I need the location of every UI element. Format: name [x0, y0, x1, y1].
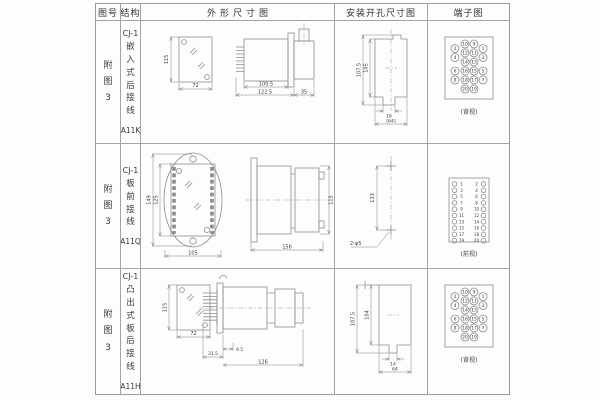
header-cutout: 安装开孔尺寸图	[335, 4, 428, 21]
dim-label: 9.5	[236, 347, 243, 353]
code-label: A11Q	[121, 237, 141, 246]
cutout-svg-a11k: 107.5 105 16 [64]	[335, 21, 428, 144]
svg-text:5: 5	[482, 317, 485, 323]
svg-text:4: 4	[454, 303, 457, 309]
dim-label: 133	[370, 193, 376, 203]
dim-label: 115	[329, 195, 335, 205]
fig-no-label: 附图3	[104, 182, 113, 231]
dim-label: 64	[392, 367, 398, 373]
svg-text:3: 3	[460, 188, 463, 193]
svg-text:14: 14	[462, 308, 468, 314]
dim-label: 2-φ5	[350, 241, 361, 247]
svg-text:10: 10	[462, 290, 468, 296]
fig-no-a11k: 附图3	[96, 21, 121, 144]
svg-text:16: 16	[462, 317, 468, 323]
terminal-svg-a11q: 1357911131517192468101214161820(前视)	[428, 144, 509, 269]
header-label: 安装开孔尺寸图	[346, 6, 416, 19]
svg-text:17: 17	[471, 326, 477, 332]
svg-text:6: 6	[454, 317, 457, 323]
svg-text:11: 11	[471, 299, 477, 305]
terminal-diagram-a11h: 1012141618209111315171924681357(背视)	[428, 269, 509, 394]
outline-drawing-a11q: 149 125 105 156 115	[141, 144, 335, 269]
svg-text:20: 20	[462, 335, 468, 341]
hook-mark	[219, 275, 227, 279]
header-outline: 外形尺寸图	[141, 4, 335, 21]
svg-text:13: 13	[459, 219, 465, 224]
svg-text:8: 8	[454, 326, 457, 332]
cutout-svg-a11q: 133 2-φ5	[335, 144, 428, 269]
svg-text:20: 20	[462, 87, 468, 93]
dim-label: 35	[301, 90, 307, 96]
svg-text:9: 9	[460, 207, 463, 212]
svg-text:1: 1	[460, 182, 463, 187]
model-label: CJ-1	[123, 29, 139, 38]
cutout-drawing-a11k: 107.5 105 16 [64]	[335, 21, 428, 144]
front-view: 115 72	[164, 37, 212, 91]
mirror-marks	[185, 181, 201, 210]
fig-no-a11q: 附图3	[96, 144, 121, 269]
header-label: 结构	[121, 6, 141, 19]
dim-label: 122.5	[258, 90, 272, 96]
code-label: A11H	[121, 382, 141, 391]
svg-text:9: 9	[473, 42, 476, 48]
spec-table: 图号 结构 外形尺寸图 安装开孔尺寸图 端子图 附图3 CJ-1 嵌入式后接线 …	[95, 3, 510, 395]
outline-drawing-a11h: 115 72 31.5 9.5	[141, 269, 335, 394]
structure-a11q: CJ-1 板前接线 A11Q	[121, 144, 141, 269]
dim-label: 72	[190, 331, 196, 337]
svg-text:(前视): (前视)	[461, 250, 478, 258]
side-view: 31.5 9.5 126	[199, 275, 311, 367]
svg-text:4: 4	[475, 188, 478, 193]
svg-text:11: 11	[459, 213, 465, 218]
svg-text:20: 20	[474, 238, 480, 243]
svg-text:14: 14	[474, 219, 480, 224]
header-label: 图号	[98, 6, 118, 19]
dim-label: 100.5	[259, 82, 273, 88]
svg-text:7: 7	[482, 78, 485, 84]
terminal-svg-a11h: 1012141618209111315171924681357(背视)	[428, 269, 509, 394]
svg-text:3: 3	[482, 303, 485, 309]
svg-text:7: 7	[460, 200, 463, 205]
code-label: A11K	[121, 126, 140, 135]
mirror-marks	[187, 294, 203, 316]
side-view: 100.5 122.5 35	[236, 23, 314, 97]
svg-text:18: 18	[462, 326, 468, 332]
svg-text:6: 6	[454, 69, 457, 75]
dim-label: 107.5	[357, 63, 363, 77]
svg-text:2: 2	[454, 294, 457, 300]
cutout-drawing-a11h: 107.5 104 14 64	[335, 269, 428, 394]
terminal-svg-a11k: 1012141618209111315171924681357(背视)	[428, 21, 509, 144]
svg-text:18: 18	[462, 78, 468, 84]
svg-text:17: 17	[459, 232, 465, 237]
dim-label: [64]	[386, 119, 395, 125]
dim-label: 105	[364, 63, 370, 73]
header-fig-no: 图号	[96, 4, 121, 21]
header-label: 外形尺寸图	[203, 6, 272, 19]
svg-text:13: 13	[471, 60, 477, 66]
svg-text:19: 19	[471, 87, 477, 93]
dim-label: 149	[147, 195, 153, 205]
dim-label: 107.5	[351, 312, 357, 326]
terminal-diagram-a11k: 1012141618209111315171924681357(背视)	[428, 21, 509, 144]
svg-text:18: 18	[474, 232, 480, 237]
outline-drawing-a11k: 115 72 100.5 122.5 35	[141, 21, 335, 144]
model-label: CJ-1	[123, 272, 139, 281]
cutout-svg-a11h: 107.5 104 14 64	[335, 269, 428, 394]
mount-type-label: 凸出式板后接线	[126, 284, 135, 373]
fig-no-a11h: 附图3	[96, 269, 121, 394]
cutout-drawing-a11q: 133 2-φ5	[335, 144, 428, 269]
svg-text:17: 17	[471, 78, 477, 84]
svg-text:16: 16	[462, 69, 468, 75]
svg-text:11: 11	[471, 51, 477, 57]
svg-text:2: 2	[475, 182, 478, 187]
svg-text:9: 9	[473, 290, 476, 296]
dim-label: 105	[188, 251, 198, 257]
mount-type-label: 板前接线	[126, 178, 135, 229]
svg-text:12: 12	[462, 299, 468, 305]
svg-text:(背视): (背视)	[461, 108, 478, 116]
svg-text:5: 5	[460, 194, 463, 199]
fig-no-label: 附图3	[104, 307, 113, 356]
svg-text:15: 15	[471, 317, 477, 323]
dim-label: 115	[163, 303, 169, 313]
dim-label: 104	[365, 310, 371, 320]
svg-text:10: 10	[474, 207, 480, 212]
svg-text:19: 19	[459, 238, 465, 243]
dim-label: 125	[154, 195, 160, 205]
svg-text:7: 7	[482, 326, 485, 332]
svg-text:12: 12	[474, 213, 480, 218]
svg-text:2: 2	[454, 46, 457, 52]
structure-a11h: CJ-1 凸出式板后接线 A11H	[121, 269, 141, 394]
datasheet-page: 图号 结构 外形尺寸图 安装开孔尺寸图 端子图 附图3 CJ-1 嵌入式后接线 …	[0, 0, 600, 400]
svg-text:1: 1	[482, 294, 485, 300]
terminal-pins	[236, 47, 244, 72]
dim-label: 126	[258, 360, 268, 366]
svg-text:8: 8	[454, 78, 457, 84]
mount-type-label: 嵌入式后接线	[126, 41, 135, 118]
dim-label: 156	[282, 245, 292, 251]
svg-text:15: 15	[471, 69, 477, 75]
svg-text:5: 5	[482, 69, 485, 75]
fig-no-label: 附图3	[104, 58, 113, 107]
header-structure: 结构	[121, 4, 141, 21]
svg-text:10: 10	[462, 42, 468, 48]
mirror-marks	[190, 48, 205, 69]
dim-label: 31.5	[208, 351, 218, 357]
svg-text:15: 15	[459, 226, 465, 231]
outline-svg-a11q: 149 125 105 156 115	[141, 144, 335, 269]
header-label: 端子图	[453, 6, 483, 19]
dim-label: 72	[192, 83, 198, 89]
svg-text:13: 13	[471, 308, 477, 314]
structure-a11k: CJ-1 嵌入式后接线 A11K	[121, 21, 141, 144]
svg-text:1: 1	[482, 46, 485, 52]
svg-text:4: 4	[454, 55, 457, 61]
svg-text:6: 6	[475, 194, 478, 199]
outline-svg-a11h: 115 72 31.5 9.5	[141, 269, 335, 394]
svg-text:12: 12	[462, 51, 468, 57]
svg-text:3: 3	[482, 55, 485, 61]
side-view: 156 115	[246, 158, 335, 252]
header-terminals: 端子图	[428, 4, 509, 21]
svg-text:19: 19	[471, 335, 477, 341]
terminal-diagram-a11q: 1357911131517192468101214161820(前视)	[428, 144, 509, 269]
model-label: CJ-1	[123, 166, 139, 175]
svg-text:14: 14	[462, 60, 468, 66]
outline-svg-a11k: 115 72 100.5 122.5 35	[141, 21, 335, 144]
svg-text:16: 16	[474, 226, 480, 231]
svg-text:(背视): (背视)	[461, 356, 478, 364]
svg-text:8: 8	[475, 200, 478, 205]
dim-label: 115	[164, 55, 170, 65]
front-view: 149 125 105	[147, 153, 223, 258]
